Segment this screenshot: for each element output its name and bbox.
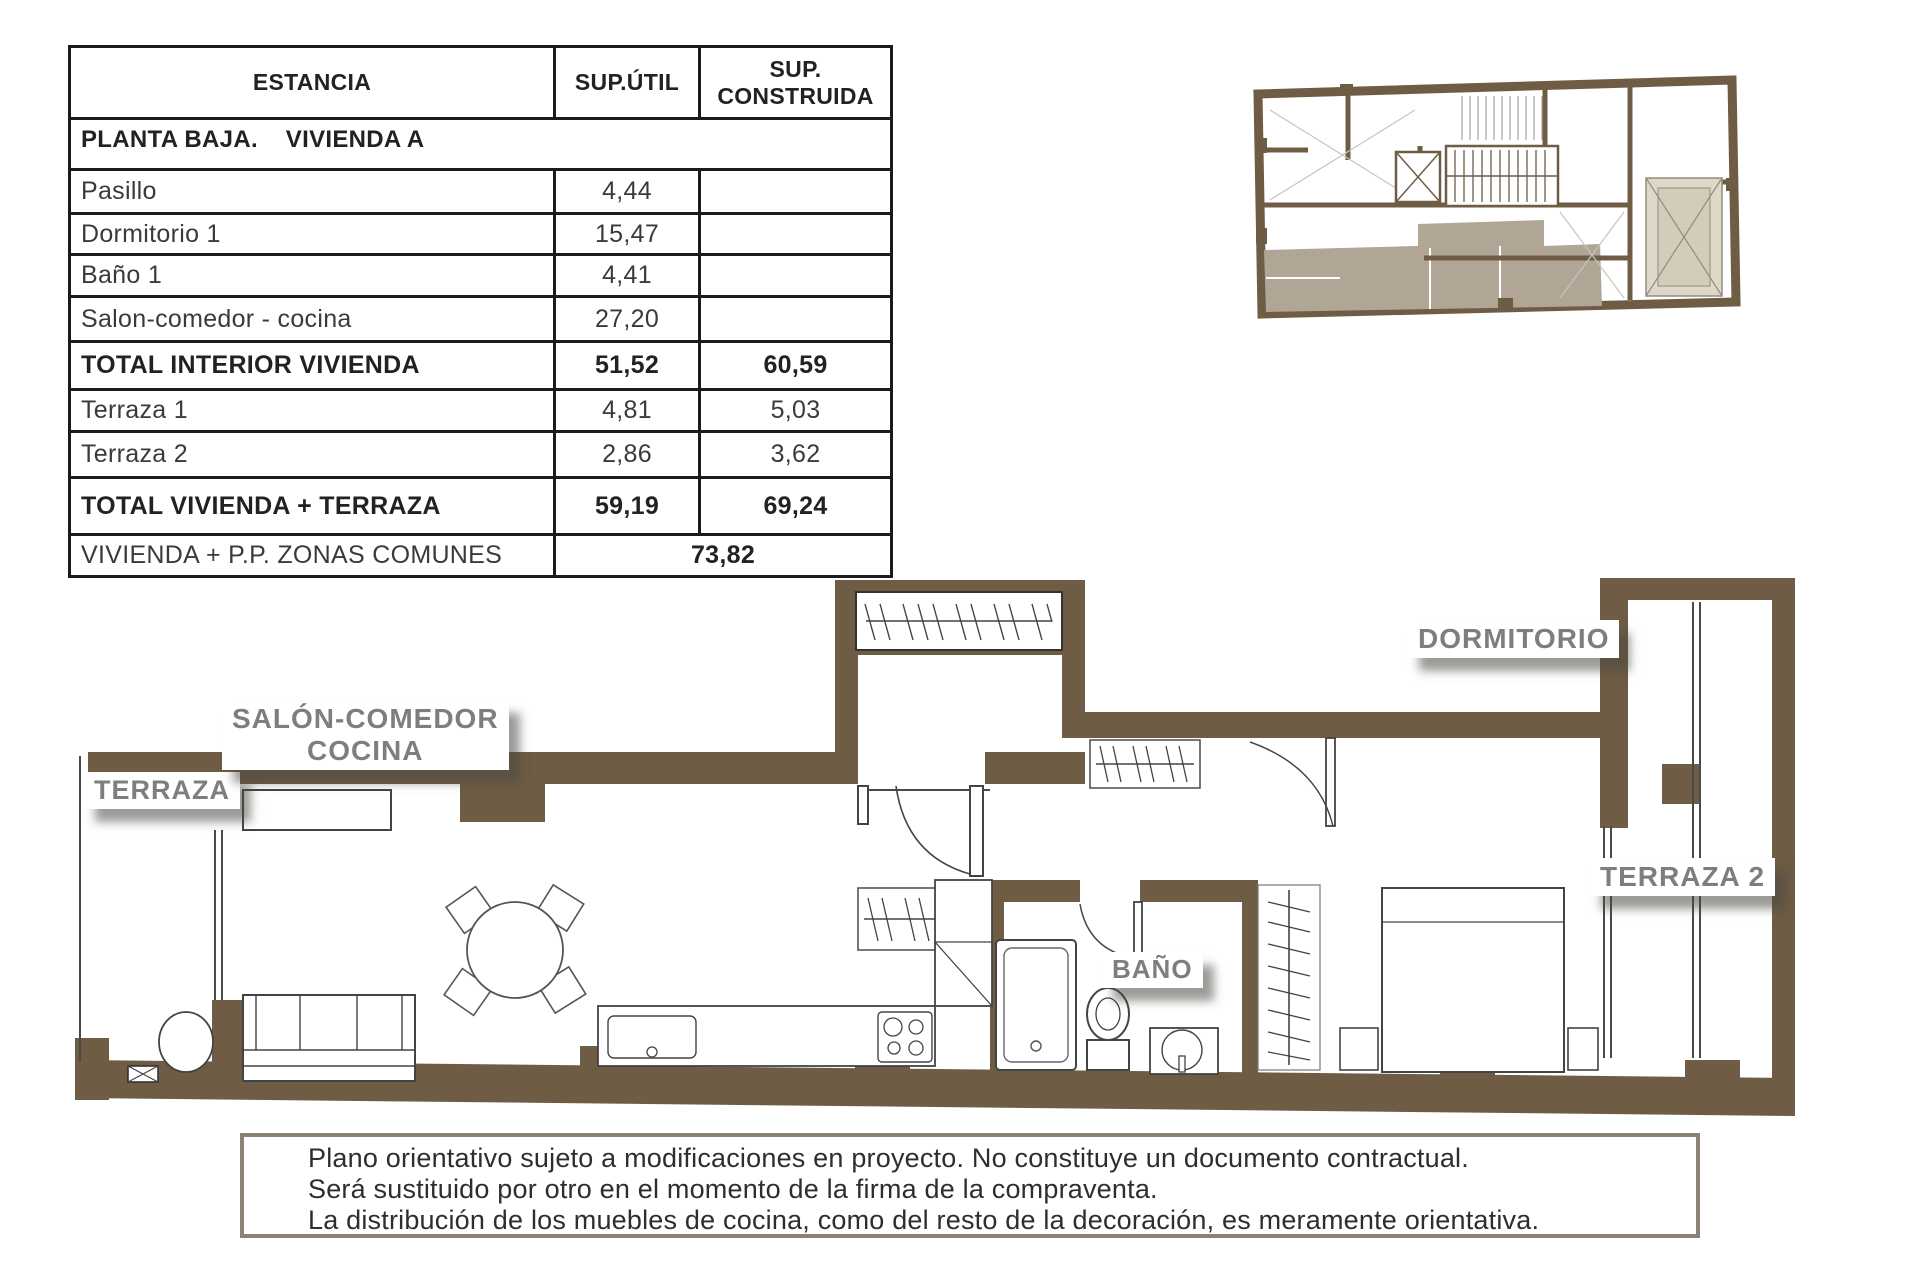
row-label: Dormitorio 1 (70, 214, 555, 255)
sofa (243, 995, 415, 1081)
label-salon-line1: SALÓN-COMEDOR (232, 703, 499, 735)
table-row: Pasillo 4,44 (70, 170, 892, 214)
disclaimer-box: Plano orientativo sujeto a modificacione… (240, 1133, 1700, 1238)
table-section-row: PLANTA BAJA. VIVIENDA A (70, 119, 892, 170)
row-label: Baño 1 (70, 255, 555, 297)
key-plan-stair (1446, 146, 1558, 206)
vent-box (128, 1066, 158, 1082)
row-util: 4,44 (555, 170, 700, 214)
row-label: Salon-comedor - cocina (70, 297, 555, 342)
table-row: Salon-comedor - cocina 27,20 (70, 297, 892, 342)
row-construida: 69,24 (700, 478, 892, 535)
sideboard (243, 790, 391, 830)
shower (996, 940, 1076, 1070)
row-util: 2,86 (555, 432, 700, 478)
pasillo-closet (1090, 740, 1200, 788)
col-header-sup-util: SUP.ÚTIL (555, 47, 700, 119)
row-util: 27,20 (555, 297, 700, 342)
label-salon-comedor-cocina: SALÓN-COMEDOR COCINA (222, 700, 509, 770)
row-util: 51,52 (555, 342, 700, 390)
row-label: TOTAL VIVIENDA + TERRAZA (70, 478, 555, 535)
row-construida: 60,59 (700, 342, 892, 390)
row-label: TOTAL INTERIOR VIVIENDA (70, 342, 555, 390)
key-plan-patio (1646, 178, 1722, 296)
label-salon-line2: COCINA (232, 735, 499, 767)
row-util: 4,41 (555, 255, 700, 297)
table-row-total-vivienda: TOTAL VIVIENDA + TERRAZA 59,19 69,24 (70, 478, 892, 535)
table-row-total-interior: TOTAL INTERIOR VIVIENDA 51,52 60,59 (70, 342, 892, 390)
col-header-estancia: ESTANCIA (70, 47, 555, 119)
terraza-window (215, 830, 222, 1000)
entry-door (858, 786, 983, 876)
nightstand-left (1340, 1028, 1378, 1070)
bedroom-door (1250, 738, 1335, 826)
label-dormitorio: DORMITORIO (1408, 620, 1619, 658)
row-util: 15,47 (555, 214, 700, 255)
row-util: 59,19 (555, 478, 700, 535)
disclaimer-line1: Plano orientativo sujeto a modificacione… (308, 1143, 1686, 1174)
tall-cabinet (935, 880, 992, 1006)
area-table: ESTANCIA SUP.ÚTIL SUP. CONSTRUIDA PLANTA… (68, 45, 893, 578)
row-construida: 5,03 (700, 390, 892, 432)
row-util: 4,81 (555, 390, 700, 432)
row-construida: 3,62 (700, 432, 892, 478)
col-header-sup-construida: SUP. CONSTRUIDA (700, 47, 892, 119)
section-title: PLANTA BAJA. VIVIENDA A (70, 119, 892, 170)
bathroom-sink (1150, 1028, 1218, 1074)
label-terraza2: TERRAZA 2 (1590, 858, 1775, 896)
terraza2-window (1693, 602, 1700, 1058)
table-row: Baño 1 4,41 (70, 255, 892, 297)
toilet (1087, 988, 1129, 1070)
label-terraza: TERRAZA (84, 772, 240, 809)
row-label: Terraza 2 (70, 432, 555, 478)
table-header-row: ESTANCIA SUP.ÚTIL SUP. CONSTRUIDA (70, 47, 892, 119)
table-row: Terraza 2 2,86 3,62 (70, 432, 892, 478)
dining-table (444, 885, 586, 1016)
bed (1340, 888, 1598, 1072)
nightstand-right (1568, 1028, 1598, 1070)
table-row: Dormitorio 1 15,47 (70, 214, 892, 255)
row-construida (700, 214, 892, 255)
row-construida (700, 170, 892, 214)
row-construida (700, 255, 892, 297)
wardrobe (1258, 885, 1320, 1070)
key-plan (1248, 66, 1744, 322)
table-row: Terraza 1 4,81 5,03 (70, 390, 892, 432)
row-label: Terraza 1 (70, 390, 555, 432)
disclaimer-line2: Será sustituido por otro en el momento d… (308, 1174, 1686, 1205)
key-plan-shaft (1396, 152, 1440, 202)
disclaimer-line3: La distribución de los muebles de cocina… (308, 1205, 1686, 1236)
row-label: Pasillo (70, 170, 555, 214)
row-construida (700, 297, 892, 342)
washer-circle (159, 1012, 213, 1072)
label-bano: BAÑO (1102, 952, 1203, 988)
entry-closet (856, 592, 1062, 650)
cooktop (878, 1012, 932, 1062)
